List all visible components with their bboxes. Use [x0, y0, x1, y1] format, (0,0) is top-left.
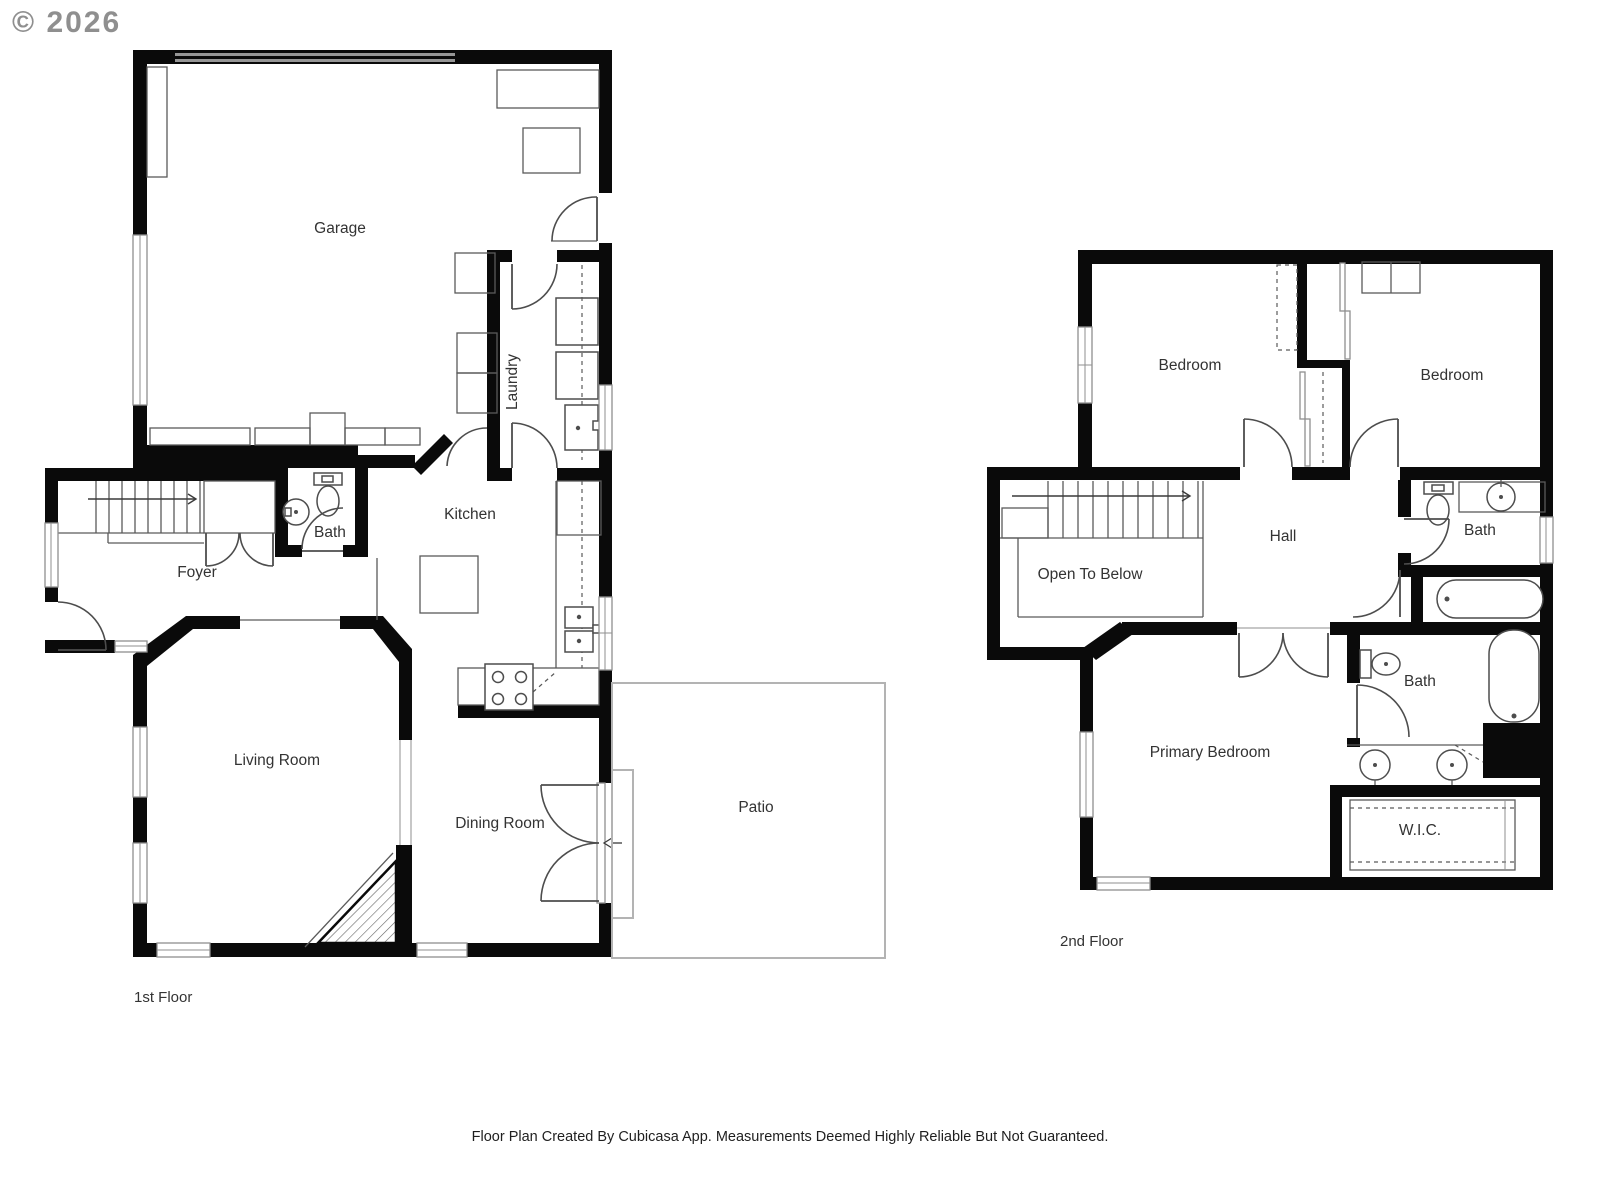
first-floor-windows [45, 235, 612, 957]
room-label-patio: Patio [738, 799, 773, 816]
primarybath-vanity-icon [1347, 745, 1483, 785]
room-label-kitchen: Kitchen [444, 506, 496, 523]
room-label-bath1: Bath [314, 524, 346, 541]
bath1-toilet-icon [314, 473, 342, 516]
disclaimer-footer: Floor Plan Created By Cubicasa App. Meas… [472, 1129, 1109, 1145]
room-label-foyer: Foyer [177, 564, 217, 581]
first-floor-plan: Garage Laundry Kitchen Bath Foyer Living… [45, 50, 885, 1006]
room-label-hall: Hall [1270, 528, 1297, 545]
bedroom-left-door-arc [1244, 419, 1292, 467]
stairs-direction-arrow [1012, 491, 1190, 501]
floor-label-2nd: 2nd Floor [1060, 933, 1123, 950]
room-label-bath-primary: Bath [1404, 673, 1436, 690]
primary-double-door-arcs [1237, 628, 1330, 677]
bath1-sink-icon [283, 499, 309, 525]
room-label-open-to-below: Open To Below [1038, 566, 1144, 583]
hallbath-tub-icon [1437, 580, 1543, 618]
room-label-bedroom-left: Bedroom [1159, 357, 1222, 374]
garage-shelves [147, 67, 599, 445]
hallbath-sink-icon [1459, 480, 1545, 512]
stove-icon [485, 664, 533, 710]
stairs-icon [58, 481, 204, 543]
open-to-below-outline [1018, 481, 1203, 617]
room-label-dining-room: Dining Room [455, 815, 545, 832]
refrigerator-icon [557, 481, 601, 535]
entry-door-arc [551, 197, 597, 241]
dryer-icon [556, 352, 598, 399]
foyer-closet [204, 481, 275, 566]
floor-label-1st: 1st Floor [134, 989, 192, 1006]
room-label-laundry: Laundry [504, 354, 521, 410]
wardrobe-icon [1277, 265, 1297, 350]
washer-icon [556, 298, 598, 345]
patio-outline [612, 683, 885, 958]
room-label-garage: Garage [314, 220, 366, 237]
room-label-wic: W.I.C. [1399, 822, 1441, 839]
stairs-up-icon [1000, 481, 1203, 538]
primarybath-toilet-icon [1360, 650, 1400, 678]
patio-door-arcs [541, 783, 605, 903]
tub-room-door-arc [1353, 570, 1400, 617]
copyright-watermark: © 2026 [12, 6, 121, 39]
bedroom-right-shelf [1362, 262, 1420, 293]
primarybath-tub-icon [1489, 630, 1539, 722]
room-label-living-room: Living Room [234, 752, 320, 769]
garage-interior-door-arc [447, 428, 487, 466]
kitchen-sink-icon [565, 607, 602, 652]
second-floor-plan: Bedroom Bedroom Hall Open To Below Bath … [987, 250, 1553, 950]
kitchen-island [420, 556, 478, 613]
primary-bath-chase [1483, 723, 1540, 778]
bedroom-right-door-arc [1350, 419, 1398, 467]
fireplace-icon [305, 853, 396, 947]
room-label-primary-bedroom: Primary Bedroom [1150, 744, 1271, 761]
stairs-direction-arrow [88, 494, 196, 504]
garage-door [175, 53, 455, 56]
living-dining-opening [399, 740, 412, 845]
room-label-bedroom-right: Bedroom [1421, 367, 1484, 384]
floor-plan-canvas: © 2026 [0, 0, 1600, 1200]
laundry-sink-icon [565, 405, 601, 450]
primarybath-door-arc [1357, 685, 1409, 738]
room-label-bath-hall: Bath [1464, 522, 1496, 539]
